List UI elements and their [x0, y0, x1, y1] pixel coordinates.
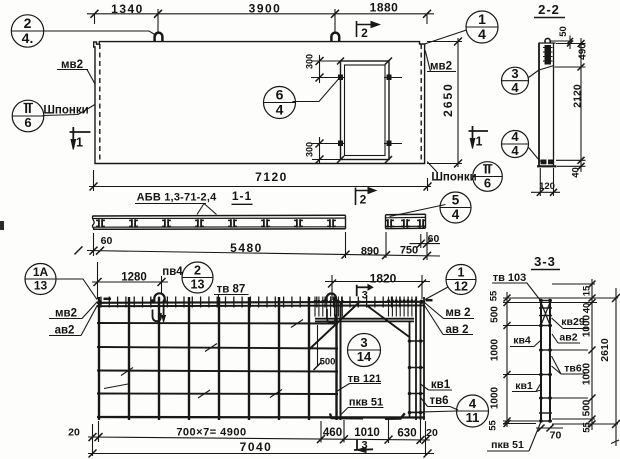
svg-text:1000: 1000	[490, 338, 501, 361]
svg-text:1: 1	[76, 136, 83, 150]
svg-text:1: 1	[458, 266, 465, 280]
svg-text:1: 1	[476, 135, 483, 149]
svg-text:1-1: 1-1	[232, 189, 252, 203]
svg-text:5480: 5480	[230, 241, 263, 255]
svg-text:4: 4	[469, 396, 477, 411]
svg-text:пкв 51: пкв 51	[349, 397, 383, 409]
svg-text:5: 5	[452, 193, 460, 208]
svg-text:ав2: ав2	[55, 325, 75, 337]
svg-text:750: 750	[400, 245, 418, 257]
svg-text:3: 3	[511, 66, 518, 81]
svg-text:4: 4	[452, 207, 460, 222]
svg-text:3900: 3900	[249, 2, 282, 16]
svg-text:4: 4	[276, 102, 284, 118]
svg-text:4: 4	[478, 26, 486, 42]
svg-text:2: 2	[360, 193, 367, 207]
svg-text:2-2: 2-2	[538, 2, 560, 17]
svg-text:2: 2	[194, 264, 201, 278]
svg-text:500: 500	[490, 306, 501, 323]
svg-text:20: 20	[68, 427, 80, 439]
svg-text:55: 55	[489, 290, 500, 301]
svg-text:1А: 1А	[33, 265, 49, 279]
svg-text:1010: 1010	[354, 427, 380, 439]
svg-text:7040: 7040	[240, 440, 273, 454]
svg-text:1: 1	[478, 11, 486, 27]
svg-text:4: 4	[511, 80, 519, 95]
svg-text:3: 3	[362, 290, 368, 302]
svg-text:кв4: кв4	[513, 335, 531, 347]
svg-text:3: 3	[361, 440, 367, 452]
svg-text:6: 6	[24, 115, 31, 130]
svg-text:2: 2	[361, 26, 368, 40]
svg-text:мв2: мв2	[55, 308, 77, 320]
svg-text:3: 3	[360, 335, 367, 350]
svg-text:500: 500	[320, 357, 336, 368]
svg-text:кв1: кв1	[515, 380, 533, 392]
svg-text:1280: 1280	[121, 272, 147, 284]
svg-text:2650: 2650	[441, 82, 455, 117]
svg-text:500: 500	[582, 399, 593, 416]
svg-text:20: 20	[426, 427, 438, 439]
svg-text:6: 6	[484, 176, 491, 191]
svg-text:13: 13	[191, 277, 205, 291]
svg-text:630: 630	[397, 428, 416, 440]
svg-text:кв29: кв29	[561, 316, 585, 328]
svg-text:1340: 1340	[111, 2, 144, 16]
svg-text:60: 60	[428, 233, 440, 245]
svg-text:890: 890	[361, 246, 379, 258]
svg-text:1820: 1820	[370, 272, 397, 286]
svg-text:2610: 2610	[599, 338, 611, 362]
svg-text:пкв 51: пкв 51	[491, 439, 524, 451]
svg-text:тв 103: тв 103	[493, 272, 527, 284]
svg-text:2120: 2120	[572, 84, 584, 108]
svg-text:14: 14	[357, 349, 372, 364]
svg-text:15: 15	[582, 285, 593, 296]
svg-text:55: 55	[488, 420, 499, 431]
svg-text:70: 70	[550, 430, 562, 442]
svg-text:4: 4	[511, 143, 519, 158]
svg-text:Шпонки: Шпонки	[431, 172, 476, 184]
svg-text:6: 6	[276, 87, 284, 103]
svg-text:пв4: пв4	[162, 266, 183, 278]
svg-text:мв 2: мв 2	[445, 307, 470, 319]
svg-text:50: 50	[558, 26, 569, 37]
svg-text:1000: 1000	[490, 386, 501, 409]
svg-text:300: 300	[305, 54, 315, 69]
svg-text:12: 12	[454, 279, 468, 293]
svg-text:460: 460	[323, 427, 342, 439]
svg-text:7120: 7120	[255, 170, 288, 184]
svg-text:60: 60	[101, 235, 113, 247]
svg-text:ав2: ав2	[559, 332, 577, 344]
svg-text:700×7= 4900: 700×7= 4900	[176, 427, 246, 439]
svg-text:кв1: кв1	[431, 379, 451, 391]
svg-text:II: II	[484, 162, 491, 177]
svg-text:300: 300	[305, 142, 315, 157]
svg-text:тв 87: тв 87	[217, 284, 246, 296]
svg-text:тв6: тв6	[429, 395, 448, 407]
svg-text:4.: 4.	[22, 30, 34, 46]
svg-text:мв2: мв2	[430, 61, 452, 73]
svg-text:1880: 1880	[370, 1, 399, 15]
svg-text:490: 490	[578, 43, 589, 60]
svg-text:13: 13	[34, 278, 48, 292]
svg-text:40: 40	[582, 303, 593, 314]
svg-text:120: 120	[539, 181, 555, 192]
svg-text:2: 2	[24, 15, 32, 31]
svg-text:11: 11	[466, 410, 480, 425]
svg-text:АБВ 1,3-71-2,4: АБВ 1,3-71-2,4	[137, 192, 217, 204]
svg-text:4: 4	[511, 129, 519, 144]
svg-text:тв6: тв6	[564, 363, 582, 375]
svg-text:55: 55	[582, 422, 593, 433]
svg-text:40: 40	[571, 167, 582, 178]
svg-text:3-3: 3-3	[534, 254, 556, 269]
